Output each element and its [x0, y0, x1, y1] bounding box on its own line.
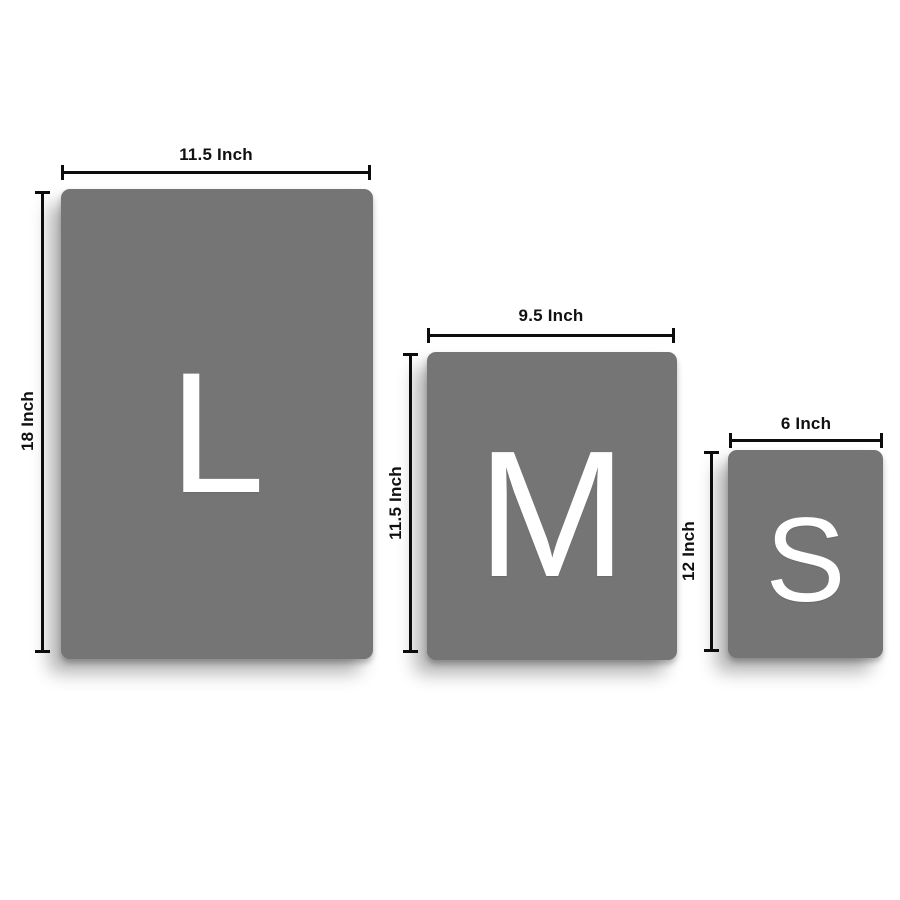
height-label-medium: 11.5 Inch — [386, 466, 406, 540]
width-label-large: 11.5 Inch — [61, 145, 371, 165]
height-label-large: 18 Inch — [18, 391, 38, 451]
size-panel-small: S — [728, 450, 883, 658]
width-dimension-line-medium — [427, 334, 675, 337]
width-label-small: 6 Inch — [729, 414, 883, 434]
height-label-small: 12 Inch — [679, 521, 699, 581]
width-dimension-line-large — [61, 171, 371, 174]
size-letter-small: S — [765, 500, 845, 620]
size-chart-diagram: 11.5 Inch 18 Inch L 9.5 Inch 11.5 Inch M… — [0, 0, 900, 900]
size-panel-large: L — [61, 189, 373, 659]
height-dimension-line-large — [41, 191, 44, 653]
width-dimension-line-small — [729, 439, 883, 442]
size-letter-medium: M — [477, 425, 627, 605]
height-dimension-line-medium — [409, 353, 412, 653]
size-panel-medium: M — [427, 352, 677, 660]
size-letter-large: L — [169, 347, 265, 519]
width-label-medium: 9.5 Inch — [427, 306, 675, 326]
height-dimension-line-small — [710, 451, 713, 652]
